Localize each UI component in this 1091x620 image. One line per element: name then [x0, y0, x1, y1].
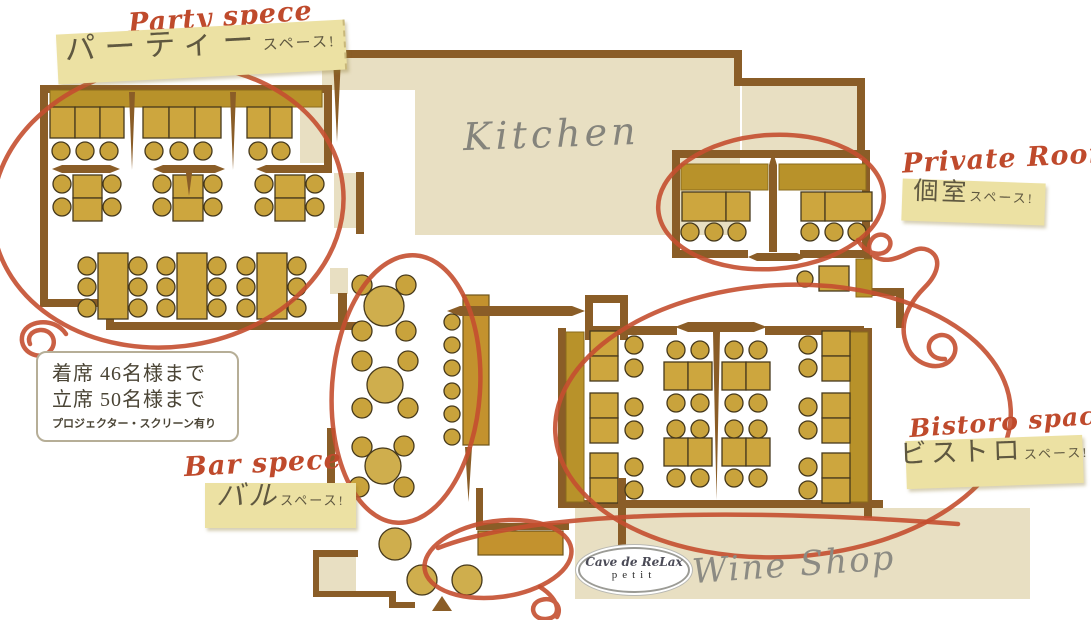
party-tag-suffix: スペース! [262, 35, 336, 54]
kitchen-label: Kitchen [462, 109, 640, 159]
capacity-standing: 立席 50名様まで [52, 387, 237, 413]
bistoro-space-tag: ビストロ スペース! [905, 435, 1084, 489]
bar-tag-suffix: スペース! [280, 494, 345, 507]
private-tag-text: 個室 [913, 179, 970, 206]
private-room-tag: 個室 スペース! [901, 179, 1045, 226]
wine-shop-logo-subtext: petit [580, 569, 688, 581]
bar-space-tag: バル スペース! [205, 483, 356, 528]
private-tag-suffix: スペース! [969, 190, 1034, 205]
wine-shop-logo: Cave de ReLax petit [578, 547, 690, 593]
bistoro-tag-suffix: スペース! [1024, 446, 1089, 461]
capacity-seated: 着席 46名様まで [52, 361, 237, 387]
bar-tag-text: バル [216, 483, 280, 511]
bistoro-tag-text: ビストロ [899, 437, 1024, 468]
party-tag-text: パーティー [64, 24, 263, 65]
floor-plan-stage: Party spece パーティー スペース! 着席 46名様まで 立席 50名… [0, 0, 1091, 620]
party-capacity-box: 着席 46名様まで 立席 50名様まで プロジェクター・スクリーン有り [36, 351, 239, 442]
floor-plan-svg [0, 0, 1091, 620]
capacity-note: プロジェクター・スクリーン有り [52, 415, 237, 431]
wine-shop-logo-text: Cave de ReLax [580, 556, 688, 569]
